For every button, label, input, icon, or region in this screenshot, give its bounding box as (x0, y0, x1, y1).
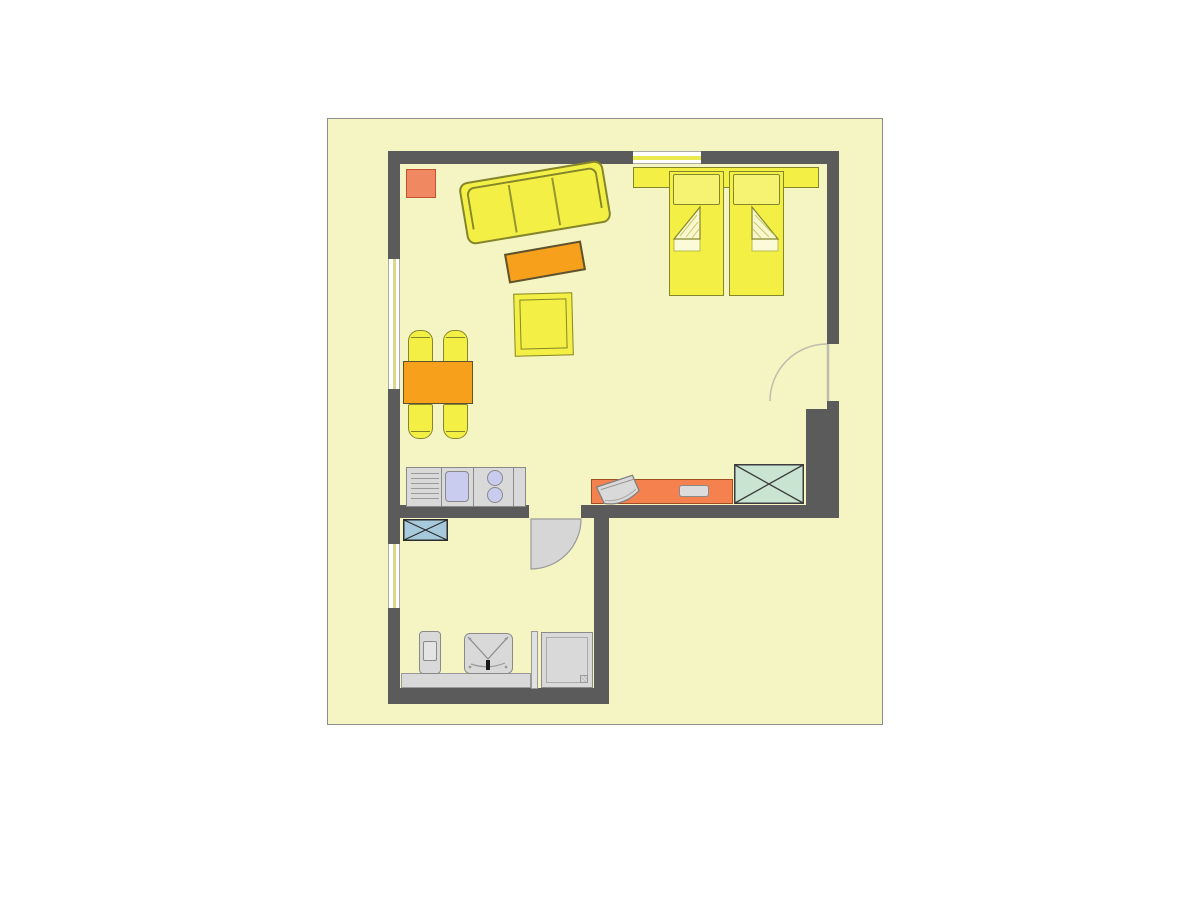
dining-chair (443, 404, 468, 439)
window-top (633, 151, 701, 164)
wall-right-inner-lining (806, 409, 827, 518)
window-pane (393, 259, 396, 389)
counter-divider (441, 468, 442, 506)
shower-tray (541, 632, 593, 688)
stove-burner (487, 470, 503, 486)
wall-left-upper (388, 151, 400, 259)
remote-tray (679, 485, 709, 497)
laundry-crossed (403, 519, 448, 541)
counter-divider (513, 468, 514, 506)
wall-bottom (388, 688, 609, 704)
sink (445, 471, 469, 502)
interior-door-swing (531, 519, 581, 569)
window-left-lower (388, 544, 400, 608)
window-left-upper (388, 259, 400, 389)
sofa (458, 159, 612, 245)
bed-headboard (633, 167, 819, 188)
wall-top-right-segment (701, 151, 839, 164)
drainboard (411, 473, 439, 502)
wall-divider-bedroom (581, 505, 839, 518)
page: { "page": { "background": "#FFFFFF" }, "… (0, 0, 1200, 900)
shower-partition (531, 631, 538, 689)
window-pane (633, 156, 701, 160)
wall-right-upper (827, 151, 839, 344)
stove-burner (487, 487, 503, 503)
wall-hall-right (594, 518, 609, 688)
folded-duvet-corner (730, 172, 785, 297)
coffee-table (504, 240, 586, 283)
floor-plan-card (327, 118, 883, 725)
toilet (419, 631, 441, 674)
bath-shelf (401, 673, 531, 688)
dining-chair (408, 404, 433, 439)
washbasin (464, 633, 513, 674)
shower-drain (580, 675, 588, 683)
wall-left-middle (388, 389, 400, 544)
armchair-seat (519, 298, 567, 349)
washbasin-detail (465, 634, 511, 672)
sofa-backrest (466, 166, 603, 229)
dining-chair (408, 330, 433, 363)
counter-divider (473, 468, 474, 506)
toilet-seat (423, 641, 437, 661)
entry-door-arc (770, 344, 827, 401)
dining-chair (443, 330, 468, 363)
folded-duvet-corner (670, 172, 725, 297)
wardrobe-crossed (734, 464, 804, 504)
window-pane (393, 544, 396, 608)
dining-table (403, 361, 473, 404)
sideboard (591, 479, 733, 504)
wall-right-lower (827, 401, 839, 518)
bed-mattress-right (729, 171, 784, 296)
armchair (513, 292, 574, 357)
kitchen-counter (406, 467, 526, 507)
side-table (406, 169, 436, 198)
bed-mattress-left (669, 171, 724, 296)
tv-icon (593, 474, 642, 509)
